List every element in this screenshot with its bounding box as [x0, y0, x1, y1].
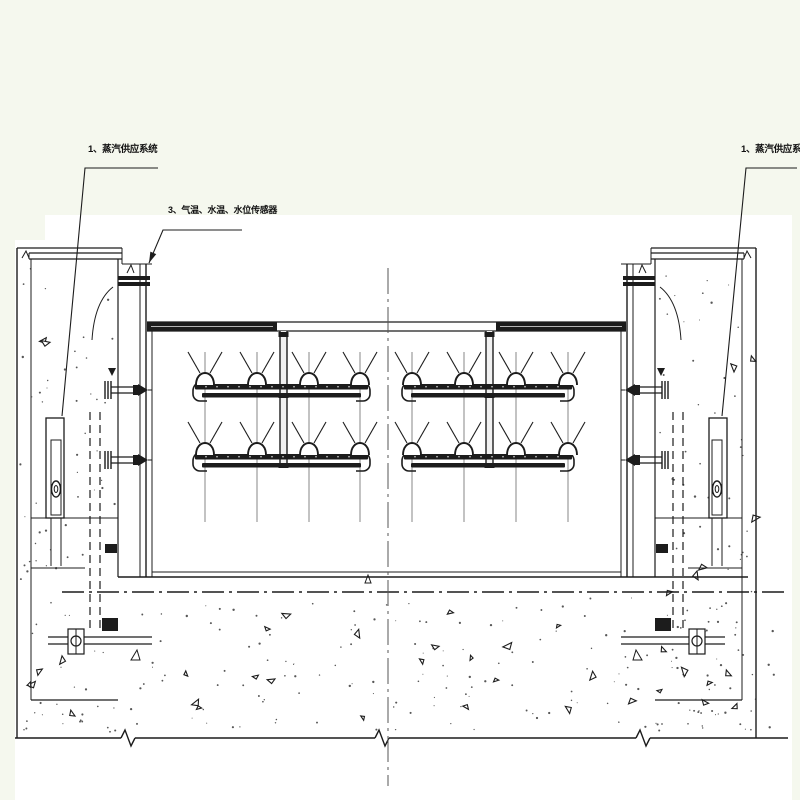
concrete-dot [264, 699, 265, 700]
concrete-dot [393, 706, 394, 707]
concrete-dot [625, 656, 627, 658]
steam-nozzle [196, 373, 214, 385]
steam-nozzle [559, 443, 577, 455]
concrete-dot [562, 605, 564, 607]
concrete-dot [694, 495, 696, 497]
concrete-dot [386, 604, 388, 606]
concrete-dot [737, 326, 739, 328]
concrete-dot [434, 705, 435, 706]
label-temperature-water-level-sensors: 3、气温、水温、水位传感器 [168, 204, 278, 215]
steam-nozzle [455, 373, 473, 385]
label-steam-supply-left: 1、蒸汽供应系统 [88, 143, 158, 155]
concrete-dot [24, 516, 25, 517]
conduit-bar [623, 282, 655, 286]
concrete-dot [85, 688, 87, 690]
concrete-dot [81, 713, 83, 715]
concrete-dot [62, 723, 63, 724]
concrete-dot [139, 687, 141, 689]
concrete-dot [717, 621, 719, 623]
concrete-dot [67, 556, 69, 558]
concrete-dot [160, 640, 162, 642]
concrete-dot [711, 710, 713, 712]
concrete-dot [735, 627, 736, 628]
concrete-dot [76, 400, 78, 402]
concrete-dot [293, 664, 294, 665]
concrete-dot [685, 451, 687, 453]
concrete-dot [239, 726, 240, 727]
concrete-dot [104, 402, 106, 404]
concrete-dot [130, 708, 132, 710]
concrete-dot [678, 702, 680, 704]
concrete-dot [65, 524, 67, 526]
concrete-dot [584, 615, 586, 617]
concrete-dot [203, 709, 205, 711]
concrete-dot [62, 713, 64, 715]
concrete-dot [665, 275, 666, 276]
concrete-dot [42, 714, 43, 715]
concrete-dot [24, 564, 26, 566]
manifold-pipe-lower [411, 463, 565, 468]
concrete-dot [446, 687, 448, 689]
concrete-dot [375, 729, 377, 731]
concrete-dot [709, 607, 711, 609]
concrete-dot [42, 401, 43, 402]
concrete-dot [111, 338, 113, 340]
concrete-dot [680, 627, 682, 629]
concrete-dot [210, 622, 212, 624]
steam-nozzle [403, 443, 421, 455]
concrete-dot [373, 693, 374, 694]
concrete-dot [284, 675, 286, 677]
concrete-dot [161, 613, 162, 614]
concrete-dot [143, 683, 145, 685]
concrete-dot [707, 280, 708, 281]
concrete-dot [745, 729, 746, 730]
concrete-dot [742, 654, 744, 656]
concrete-dot [23, 729, 24, 730]
concrete-dot [714, 412, 716, 414]
concrete-dot [667, 615, 668, 616]
concrete-dot [676, 667, 678, 669]
concrete-dot [727, 569, 728, 570]
concrete-dot [269, 634, 271, 636]
concrete-dot [728, 545, 730, 547]
steam-nozzle [248, 373, 266, 385]
concrete-dot [96, 450, 97, 451]
concrete-dot [29, 561, 30, 562]
concrete-dot [511, 684, 513, 686]
concrete-dot [395, 620, 396, 621]
steam-nozzle [300, 443, 318, 455]
concrete-dot [248, 646, 250, 648]
concrete-dot [319, 674, 320, 675]
concrete-dot [23, 283, 25, 285]
concrete-dot [637, 688, 639, 690]
concrete-dot [577, 702, 578, 703]
concrete-dot [697, 711, 699, 713]
concrete-dot [484, 680, 486, 682]
concrete-dot [729, 687, 731, 689]
manifold-pipe [195, 384, 368, 390]
concrete-dot [750, 710, 752, 712]
concrete-dot [624, 630, 626, 632]
concrete-dot [86, 357, 88, 359]
concrete-dot [36, 503, 37, 504]
concrete-dot [39, 531, 41, 533]
concrete-dot [742, 455, 743, 456]
concrete-dot [219, 629, 221, 631]
concrete-dot [750, 729, 752, 731]
concrete-dot [672, 667, 673, 668]
concrete-dot [631, 597, 632, 598]
steam-nozzle [351, 373, 369, 385]
concrete-dot [655, 723, 656, 724]
concrete-dot [410, 712, 412, 714]
concrete-dot [589, 598, 591, 600]
concrete-dot [687, 723, 689, 725]
concrete-dot [242, 684, 244, 686]
concrete-dot [661, 723, 663, 725]
concrete-dot [25, 728, 27, 730]
concrete-dot [498, 662, 500, 664]
concrete-dot [462, 649, 463, 650]
concrete-dot [699, 320, 700, 321]
concrete-dot [32, 633, 34, 635]
concrete-dot [164, 675, 166, 677]
concrete-dot [217, 684, 219, 686]
concrete-dot [502, 620, 503, 621]
drawing-page: 1、蒸汽供应系统 3、气温、水温、水位传感器 1、蒸汽供应系统 [0, 0, 800, 800]
concrete-dot [65, 615, 66, 616]
concrete-dot [425, 621, 427, 623]
concrete-dot [26, 570, 28, 572]
concrete-dot [725, 602, 727, 604]
concrete-dot [35, 560, 36, 561]
concrete-dot [677, 626, 679, 628]
concrete-dot [646, 654, 648, 656]
concrete-dot [281, 617, 282, 618]
concrete-dot [516, 607, 518, 609]
concrete-dot [721, 605, 723, 607]
concrete-dot [447, 676, 448, 677]
steam-heating-section-drawing: 1、蒸汽供应系统 3、气温、水温、水位传感器 1、蒸汽供应系统 [0, 0, 800, 800]
concrete-dot [746, 530, 747, 531]
concrete-dot [19, 463, 21, 465]
concrete-dot [136, 723, 138, 725]
steam-nozzle [507, 373, 525, 385]
concrete-dot [275, 722, 276, 723]
concrete-dot [77, 472, 78, 473]
concrete-dot [540, 609, 542, 611]
concrete-dot [672, 649, 674, 651]
concrete-dot [76, 454, 78, 456]
steam-nozzle [351, 443, 369, 455]
concrete-dot [258, 642, 260, 644]
concrete-dot [768, 664, 770, 666]
concrete-dot [571, 700, 572, 701]
concrete-dot [644, 726, 646, 728]
concrete-dot [716, 609, 717, 610]
pipe-collar [485, 332, 495, 337]
concrete-dot [349, 685, 351, 687]
steam-nozzle [507, 443, 525, 455]
manifold-pipe-lower [411, 393, 565, 398]
concrete-dot [663, 374, 665, 376]
concrete-dot [659, 432, 660, 433]
concrete-dot [675, 657, 677, 659]
concrete-dot [667, 313, 669, 315]
concrete-dot [548, 712, 550, 714]
concrete-dot [107, 299, 109, 301]
concrete-dot [335, 665, 337, 667]
concrete-dot [414, 643, 416, 645]
concrete-dot [702, 292, 704, 294]
conduit-bar [623, 276, 655, 280]
concrete-dot [36, 624, 38, 626]
concrete-dot [459, 622, 461, 624]
concrete-dot [740, 446, 742, 448]
concrete-dot [101, 487, 103, 489]
concrete-dot [734, 395, 736, 397]
concrete-dot [686, 610, 688, 612]
manifold-pipe-lower [202, 463, 361, 468]
concrete-dot [450, 723, 451, 724]
conduit-bar [118, 276, 150, 280]
concrete-dot [31, 396, 32, 397]
concrete-dot [151, 662, 153, 664]
concrete-dot [710, 302, 712, 304]
drawing-canvas [15, 215, 792, 800]
concrete-dot [45, 288, 46, 289]
concrete-dot [258, 695, 260, 697]
concrete-dot [113, 707, 114, 708]
pipe-fitting [105, 544, 117, 553]
concrete-dot [395, 729, 396, 730]
feed-pipe-fill [486, 331, 493, 466]
concrete-dot [94, 651, 95, 652]
concrete-dot [22, 356, 24, 358]
concrete-dot [353, 610, 355, 612]
concrete-dot [714, 684, 716, 686]
concrete-dot [773, 674, 775, 676]
concrete-dot [734, 634, 736, 636]
concrete-dot [97, 706, 99, 708]
concrete-dot [34, 712, 35, 713]
concrete-dot [56, 704, 57, 705]
concrete-dot [693, 710, 695, 712]
concrete-dot [35, 543, 36, 544]
manifold-pipe-lower [202, 393, 361, 398]
bolt-head [635, 455, 640, 465]
concrete-dot [539, 639, 541, 641]
concrete-dot [717, 548, 719, 550]
concrete-dot [736, 621, 738, 623]
concrete-dot [46, 387, 47, 388]
concrete-dot [60, 667, 61, 668]
concrete-dot [671, 661, 672, 662]
concrete-dot [460, 706, 461, 707]
concrete-dot [161, 680, 163, 682]
concrete-dot [94, 489, 95, 490]
concrete-dot [419, 620, 421, 622]
concrete-dot [618, 673, 619, 674]
concrete-dot [471, 686, 473, 688]
concrete-dot [372, 681, 374, 683]
concrete-dot [532, 713, 533, 714]
concrete-dot [103, 652, 104, 653]
steam-nozzle [403, 373, 421, 385]
concrete-dot [256, 615, 258, 617]
concrete-dot [69, 615, 70, 616]
label-steam-supply-right: 1、蒸汽供应系统 [741, 143, 800, 155]
concrete-dot [724, 712, 726, 714]
concrete-dot [556, 630, 557, 631]
concrete-dot [352, 683, 353, 684]
feed-pipe-fill [280, 331, 287, 466]
concrete-dot [423, 653, 424, 654]
concrete-dot [74, 350, 76, 352]
concrete-dot [350, 643, 352, 645]
concrete-dot [700, 712, 702, 714]
bolt-head [133, 455, 138, 465]
concrete-dot [571, 691, 573, 693]
concrete-dot [262, 701, 264, 703]
concrete-dot [434, 697, 435, 698]
concrete-dot [312, 603, 314, 605]
steam-nozzle [559, 373, 577, 385]
concrete-dot [605, 634, 607, 636]
concrete-dot [316, 722, 318, 724]
concrete-dot [740, 559, 741, 560]
steam-nozzle [248, 443, 266, 455]
concrete-dot [751, 591, 752, 592]
concrete-dot [267, 659, 269, 661]
concrete-dot [64, 368, 66, 370]
concrete-dot [469, 676, 471, 678]
concrete-dot [395, 702, 397, 704]
concrete-dot [526, 710, 528, 712]
concrete-dot [625, 684, 627, 686]
concrete-dot [351, 629, 352, 630]
concrete-dot [80, 719, 82, 721]
pipe-fitting [656, 544, 668, 553]
concrete-dot [46, 565, 47, 566]
concrete-dot [658, 729, 660, 731]
concrete-dot [206, 723, 207, 724]
concrete-dot [152, 667, 153, 668]
concrete-dot [285, 661, 286, 662]
concrete-dot [715, 714, 716, 715]
concrete-dot [219, 608, 221, 610]
bolt-head [635, 385, 640, 395]
concrete-dot [659, 298, 661, 300]
concrete-dot [674, 295, 675, 296]
concrete-dot [586, 668, 588, 670]
steam-nozzle [300, 373, 318, 385]
concrete-dot [716, 658, 717, 659]
concrete-dot [443, 650, 444, 651]
concrete-dot [618, 721, 620, 723]
concrete-dot [224, 670, 226, 672]
concrete-dot [442, 665, 444, 667]
concrete-dot [90, 393, 91, 394]
concrete-dot [101, 480, 102, 481]
concrete-dot [47, 380, 48, 381]
concrete-dot [676, 548, 678, 550]
concrete-dot [746, 556, 748, 558]
concrete-dot [141, 614, 143, 616]
concrete-dot [469, 696, 470, 697]
concrete-dot [718, 713, 719, 714]
concrete-dot [20, 578, 22, 580]
concrete-dot [77, 496, 79, 498]
concrete-dot [96, 399, 98, 401]
manifold-pipe [195, 454, 368, 460]
concrete-dot [707, 674, 709, 676]
concrete-dot [205, 605, 206, 606]
concrete-dot [113, 503, 115, 505]
concrete-dot [709, 689, 710, 690]
pipe-fitting [102, 618, 118, 631]
concrete-dot [657, 723, 659, 725]
concrete-dot [74, 686, 75, 687]
concrete-dot [50, 602, 52, 604]
concrete-dot [298, 692, 300, 694]
concrete-dot [39, 392, 41, 394]
pipe-collar [279, 332, 289, 337]
concrete-dot [192, 718, 193, 719]
concrete-dot [591, 648, 592, 649]
conduit-bar [118, 282, 150, 286]
steam-nozzle [455, 443, 473, 455]
concrete-dot [114, 729, 116, 731]
concrete-dot [40, 702, 42, 704]
concrete-dot [607, 703, 609, 705]
concrete-dot [627, 667, 629, 669]
concrete-dot [536, 717, 538, 719]
concrete-dot [107, 727, 109, 729]
concrete-dot [408, 603, 409, 604]
concrete-dot [614, 681, 615, 682]
concrete-dot [699, 526, 701, 528]
concrete-dot [76, 366, 78, 368]
concrete-dot [689, 709, 690, 710]
concrete-dot [422, 674, 423, 675]
concrete-dot [684, 619, 686, 621]
concrete-dot [699, 463, 701, 465]
bolt-head [133, 385, 138, 395]
concrete-dot [708, 621, 710, 623]
concrete-dot [702, 725, 703, 726]
concrete-dot [532, 661, 534, 663]
concrete-dot [706, 630, 708, 632]
concrete-dot [752, 674, 753, 675]
concrete-dot [698, 404, 699, 405]
concrete-dot [692, 360, 694, 362]
concrete-dot [186, 615, 188, 617]
concrete-dot [232, 609, 234, 611]
concrete-dot [354, 624, 356, 626]
concrete-dot [109, 731, 111, 733]
steam-nozzle [196, 443, 214, 455]
concrete-dot [769, 726, 771, 728]
concrete-dot [465, 693, 467, 695]
concrete-dot [340, 646, 341, 647]
concrete-dot [720, 664, 722, 666]
concrete-dot [490, 624, 492, 626]
concrete-dot [728, 284, 729, 285]
concrete-dot [373, 618, 375, 620]
